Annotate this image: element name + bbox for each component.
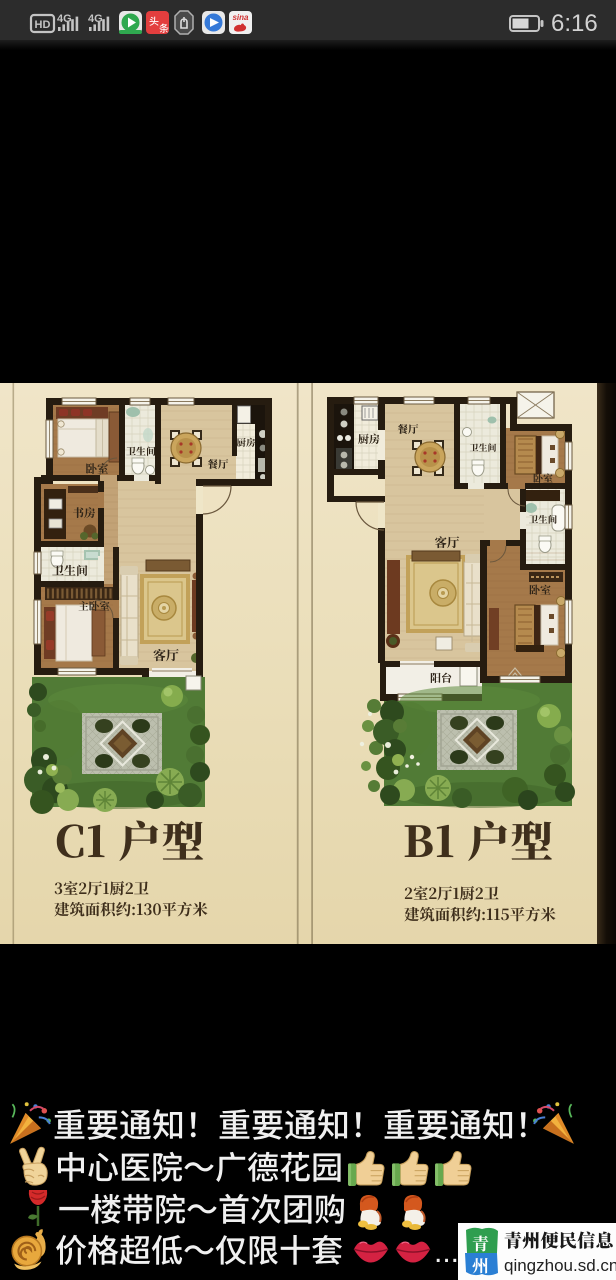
svg-text:HD: HD — [35, 19, 51, 31]
svg-text:...: ... — [434, 1236, 459, 1269]
svg-text:sina: sina — [232, 13, 249, 22]
svg-text:qingzhou.sd.cn: qingzhou.sd.cn — [504, 1256, 616, 1275]
svg-text:4G: 4G — [88, 13, 103, 25]
svg-text:6:16: 6:16 — [551, 10, 598, 37]
svg-text:4G: 4G — [57, 13, 72, 25]
